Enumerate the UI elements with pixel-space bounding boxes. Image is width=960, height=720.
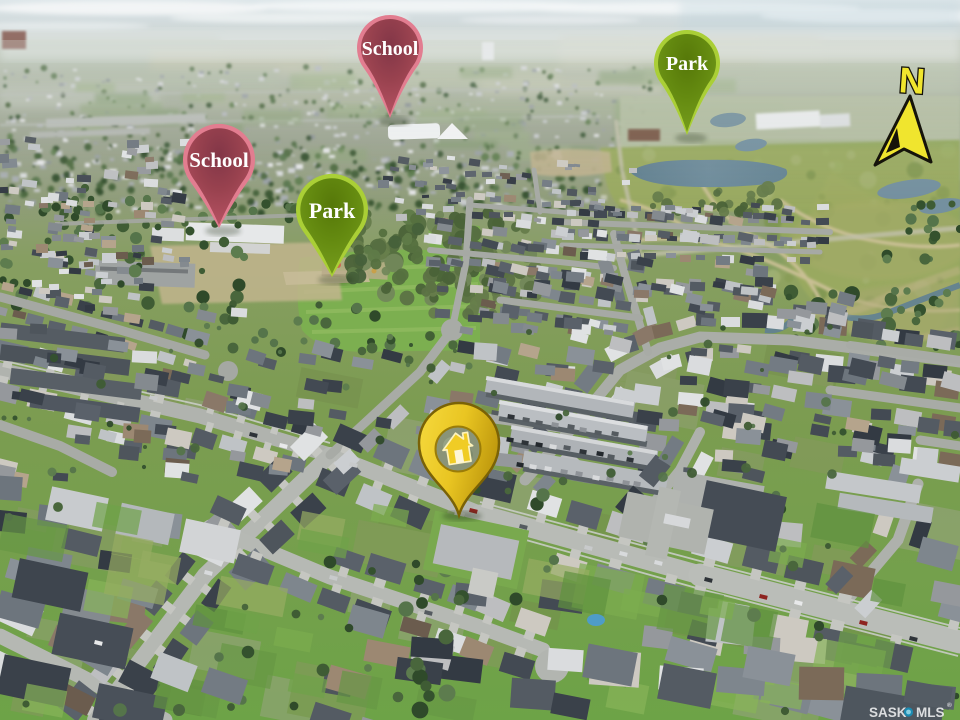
svg-text:SASK: SASK [869,705,907,720]
svg-text:MLS: MLS [916,705,945,720]
svg-text:Park: Park [666,53,709,75]
svg-text:School: School [189,148,249,172]
svg-text:N: N [898,59,927,102]
svg-text:Park: Park [309,198,356,223]
svg-text:®: ® [947,701,952,709]
svg-text:School: School [362,38,419,60]
